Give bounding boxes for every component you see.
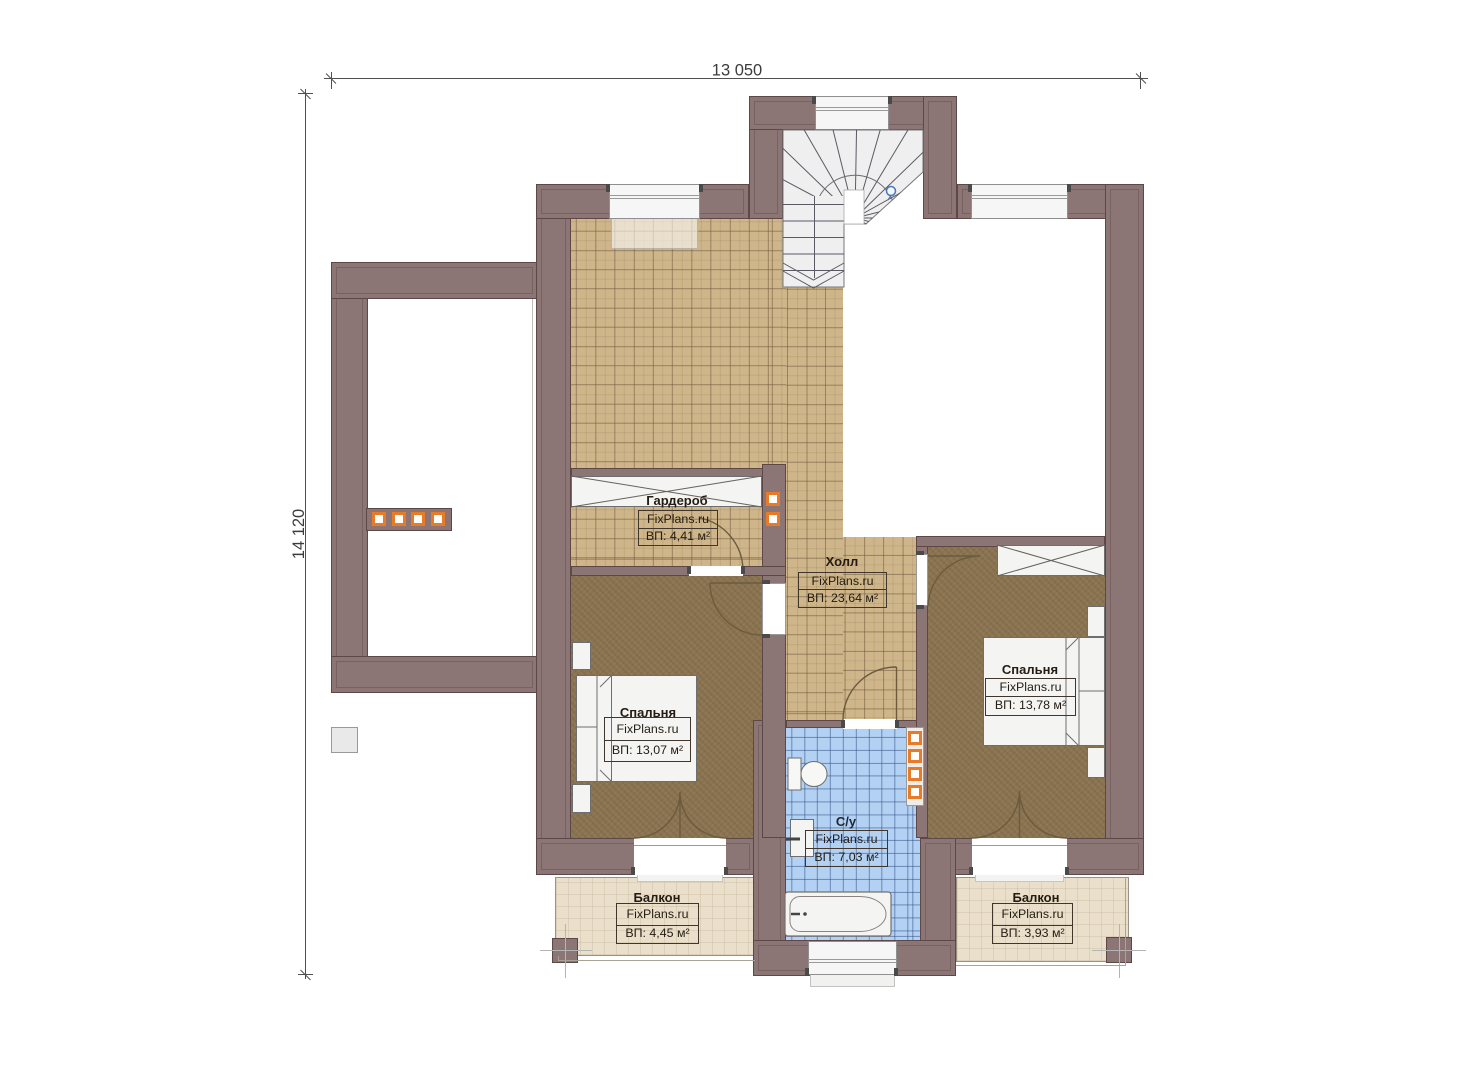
svg-text:14 120: 14 120 [290, 509, 308, 559]
svg-text:13 050: 13 050 [712, 62, 762, 80]
